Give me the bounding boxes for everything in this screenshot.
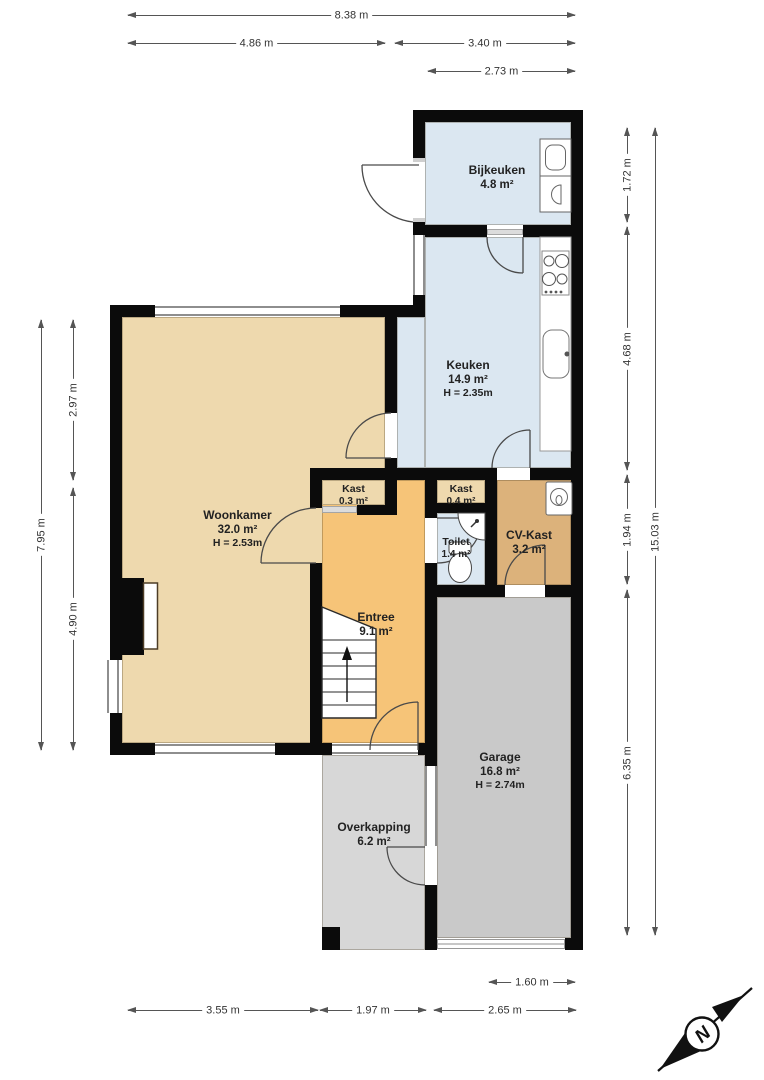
- dim-bottom-garage-door: 1.60 m: [489, 982, 575, 983]
- room-name: Kast: [433, 483, 489, 496]
- room-keuken-floor: [425, 237, 571, 468]
- room-name: Keuken: [408, 358, 528, 373]
- room-area: 16.8 m²: [440, 765, 560, 779]
- room-name: Entree: [338, 610, 414, 625]
- dim-arrow-down: [38, 742, 44, 751]
- dim-label: 3.55 m: [202, 1005, 244, 1018]
- wall-chimney: [110, 578, 144, 655]
- room-area: 0.4 m²: [433, 496, 489, 509]
- room-label-kast-03: Kast 0.3 m²: [322, 483, 385, 509]
- room-area: 0.3 m²: [322, 496, 385, 509]
- dim-arrow-right: [310, 1007, 319, 1013]
- room-label-kast-04: Kast 0.4 m²: [433, 483, 489, 509]
- window-front-door-sill: [332, 744, 418, 754]
- wall-segment: [523, 225, 571, 237]
- dim-label: 8.38 m: [331, 10, 373, 23]
- dim-label: 7.95 m: [36, 514, 49, 556]
- dim-top-left: 4.86 m: [128, 43, 385, 44]
- dim-right-total: 15.03 m: [655, 128, 656, 935]
- dim-top-total: 8.38 m: [128, 15, 575, 16]
- dim-left-total: 7.95 m: [41, 320, 42, 750]
- dim-arrow-right: [377, 40, 386, 46]
- room-overkapping-floor: [322, 755, 425, 950]
- dim-arrow-down: [624, 576, 630, 585]
- dim-arrow-left: [488, 979, 497, 985]
- dim-left-lower: 4.90 m: [73, 488, 74, 750]
- wall-column: [322, 927, 340, 950]
- dim-label: 3.40 m: [464, 38, 506, 51]
- wall-segment: [545, 585, 571, 597]
- dim-arrow-left: [433, 1007, 442, 1013]
- room-area: 6.2 m²: [320, 835, 428, 849]
- compass-north-icon: N: [648, 978, 764, 1078]
- window: [155, 306, 340, 316]
- dim-arrow-left: [127, 1007, 136, 1013]
- wall-segment: [340, 305, 425, 317]
- dim-arrow-left: [427, 68, 436, 74]
- dim-label: 1.94 m: [622, 509, 635, 551]
- wall-segment: [413, 110, 425, 162]
- dim-right-garage: 6.35 m: [627, 590, 628, 935]
- dim-arrow-up: [624, 474, 630, 483]
- wall-segment: [437, 585, 505, 597]
- window: [107, 660, 119, 713]
- room-name: Garage: [440, 750, 560, 765]
- room-area: 4.8 m²: [437, 178, 557, 192]
- door-jamb-ticks: [413, 158, 425, 222]
- dim-arrow-down: [70, 742, 76, 751]
- dim-right-cv: 1.94 m: [627, 475, 628, 584]
- dim-arrow-up: [624, 589, 630, 598]
- dim-arrow-down: [652, 927, 658, 936]
- room-label-bijkeuken: Bijkeuken 4.8 m²: [437, 163, 557, 192]
- door-arc: [362, 165, 419, 222]
- room-label-garage: Garage 16.8 m² H = 2.74m: [440, 750, 560, 793]
- dim-arrow-left: [319, 1007, 328, 1013]
- wall-segment: [310, 563, 322, 755]
- dim-arrow-left: [127, 12, 136, 18]
- dim-arrow-up: [624, 127, 630, 136]
- dim-label: 6.35 m: [622, 742, 635, 784]
- dim-top-bijkeuken: 2.73 m: [428, 71, 575, 72]
- room-name: Kast: [322, 483, 385, 496]
- dim-arrow-right: [568, 1007, 577, 1013]
- dim-left-upper: 2.97 m: [73, 320, 74, 480]
- window: [413, 235, 425, 295]
- room-area: 9.1 m²: [338, 625, 414, 639]
- wall-segment: [322, 743, 332, 755]
- dim-right-keuken: 4.68 m: [627, 227, 628, 470]
- wall-segment: [110, 743, 155, 755]
- dim-label: 2.73 m: [481, 66, 523, 79]
- wall-segment: [310, 468, 492, 480]
- room-label-keuken: Keuken 14.9 m² H = 2.35m: [408, 358, 528, 401]
- dim-top-right: 3.40 m: [395, 43, 575, 44]
- door-threshold: [487, 229, 523, 235]
- dim-right-bijkeuken: 1.72 m: [627, 128, 628, 222]
- wall-segment: [385, 458, 397, 515]
- dim-label: 1.60 m: [511, 977, 553, 990]
- wall-segment: [565, 938, 583, 950]
- dim-arrow-right: [567, 40, 576, 46]
- wall-segment: [385, 305, 397, 413]
- room-area: 32.0 m²: [160, 523, 315, 537]
- dim-label: 2.65 m: [484, 1005, 526, 1018]
- dim-label: 15.03 m: [650, 508, 663, 556]
- room-name: CV-Kast: [470, 528, 588, 543]
- dim-arrow-up: [70, 487, 76, 496]
- room-area: 14.9 m²: [408, 373, 528, 387]
- room-height: H = 2.53m: [160, 537, 315, 550]
- dim-arrow-left: [127, 40, 136, 46]
- floor-plan: Bijkeuken 4.8 m² Keuken 14.9 m² H = 2.35…: [0, 0, 764, 1080]
- room-label-woonkamer: Woonkamer 32.0 m² H = 2.53m: [160, 508, 315, 551]
- dim-arrow-right: [567, 68, 576, 74]
- room-height: H = 2.35m: [408, 387, 528, 400]
- dim-arrow-down: [624, 462, 630, 471]
- dim-bottom-middle: 1.97 m: [320, 1010, 426, 1011]
- dim-label: 2.97 m: [68, 379, 81, 421]
- dim-label: 1.72 m: [622, 154, 635, 196]
- garage-door: [437, 939, 565, 949]
- dim-arrow-right: [418, 1007, 427, 1013]
- dim-arrow-left: [394, 40, 403, 46]
- room-label-entree: Entree 9.1 m²: [338, 610, 414, 639]
- window: [155, 744, 275, 754]
- room-height: H = 2.74m: [440, 779, 560, 792]
- dim-label: 1.97 m: [352, 1005, 394, 1018]
- room-area: 3.2 m²: [470, 543, 588, 557]
- room-name: Overkapping: [320, 820, 428, 835]
- room-label-cv-kast: CV-Kast 3.2 m²: [470, 528, 588, 557]
- dim-arrow-down: [624, 927, 630, 936]
- dim-arrow-up: [70, 319, 76, 328]
- dim-arrow-up: [652, 127, 658, 136]
- room-name: Woonkamer: [160, 508, 315, 523]
- wall-segment: [413, 110, 583, 122]
- dim-arrow-down: [70, 472, 76, 481]
- wall-segment: [425, 938, 437, 950]
- room-name: Bijkeuken: [437, 163, 557, 178]
- wall-segment: [425, 563, 437, 766]
- dim-label: 4.90 m: [68, 598, 81, 640]
- dim-arrow-right: [567, 979, 576, 985]
- dim-arrow-up: [38, 319, 44, 328]
- room-label-overkapping: Overkapping 6.2 m²: [320, 820, 428, 849]
- wall-segment: [530, 468, 571, 480]
- dim-arrow-right: [567, 12, 576, 18]
- dim-arrow-up: [624, 226, 630, 235]
- dim-bottom-right: 2.65 m: [434, 1010, 576, 1011]
- dim-label: 4.86 m: [236, 38, 278, 51]
- dim-label: 4.68 m: [622, 328, 635, 370]
- dim-bottom-left: 3.55 m: [128, 1010, 318, 1011]
- dim-arrow-down: [624, 214, 630, 223]
